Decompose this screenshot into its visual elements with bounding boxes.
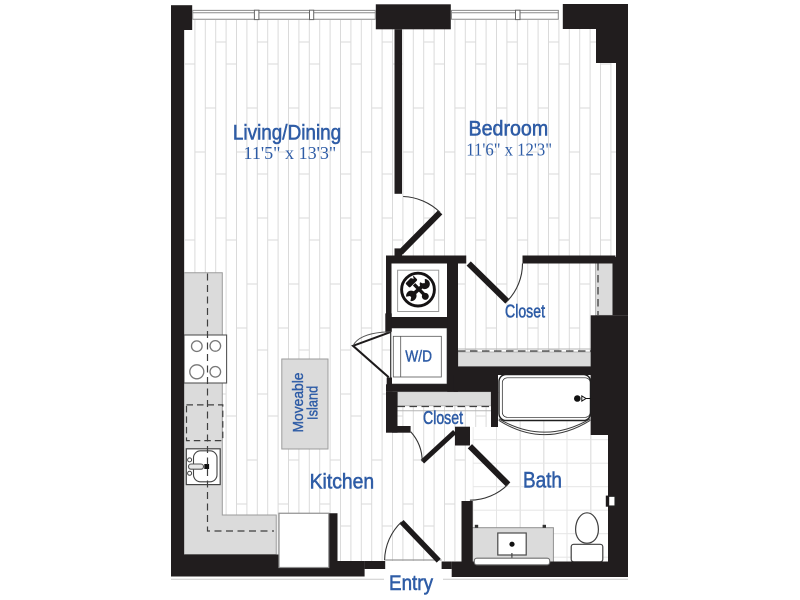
svg-text:Bedroom: Bedroom	[469, 117, 549, 141]
svg-text:11'6" x 12'3": 11'6" x 12'3"	[466, 139, 552, 159]
svg-text:11'5" x 13'3": 11'5" x 13'3"	[244, 143, 337, 163]
svg-text:Closet: Closet	[505, 301, 545, 322]
svg-text:Island: Island	[304, 386, 321, 420]
svg-text:Closet: Closet	[423, 407, 463, 428]
svg-text:Entry: Entry	[389, 571, 433, 595]
svg-text:Living/Dining: Living/Dining	[233, 121, 341, 145]
svg-text:Kitchen: Kitchen	[310, 470, 375, 494]
svg-text:W/D: W/D	[405, 349, 432, 366]
svg-text:Bath: Bath	[523, 468, 562, 493]
